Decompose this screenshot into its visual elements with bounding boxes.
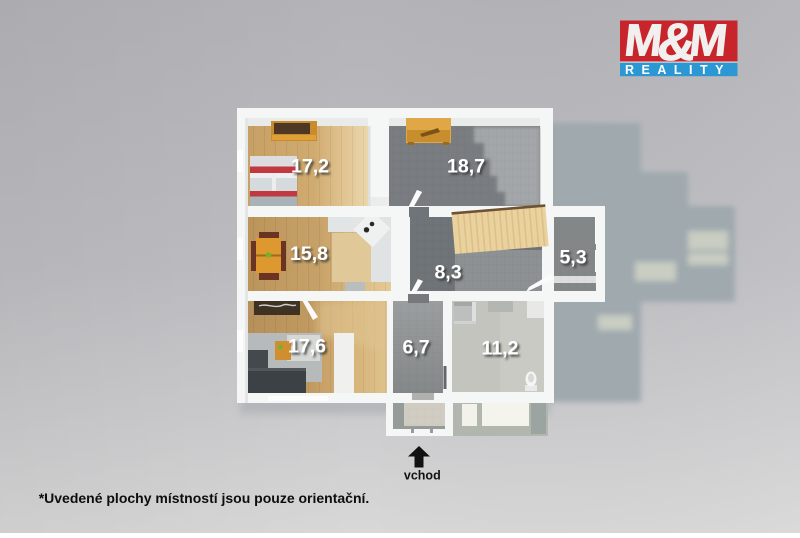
svg-text:vchod: vchod [404,468,441,482]
svg-text:17,2: 17,2 [291,156,329,178]
svg-text:5,3: 5,3 [559,247,586,269]
svg-text:6,7: 6,7 [402,337,429,359]
svg-text:11,2: 11,2 [482,338,519,360]
svg-text:REALITY: REALITY [625,63,731,77]
svg-text:17,6: 17,6 [288,336,326,358]
svg-text:8,3: 8,3 [434,262,461,284]
svg-text:*Uvedené plochy místností jsou: *Uvedené plochy místností jsou pouze ori… [39,490,370,506]
svg-text:18,7: 18,7 [447,156,485,178]
svg-text:15,8: 15,8 [290,243,328,265]
